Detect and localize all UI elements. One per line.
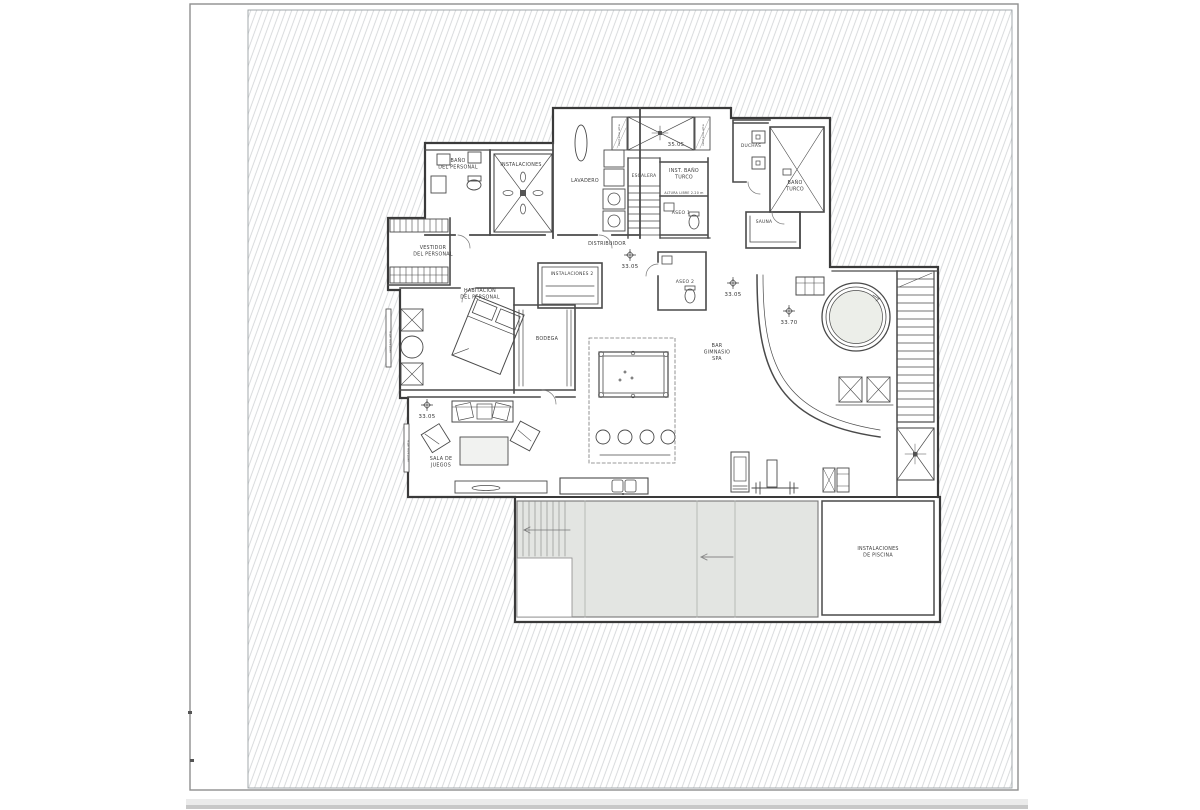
scanned-page-viewport: BAÑODEL PERSONALINSTALACIONESLAVADEROESC…	[0, 0, 1200, 810]
room-label-altura-libre: ALTURA LIBRE 2.20 m	[664, 191, 703, 195]
level-value: 33.05	[622, 264, 639, 270]
room-label-duchas: DUCHAS	[741, 143, 761, 149]
room-label-aseo-1: ASEO 1	[672, 210, 690, 216]
jacuzzi	[822, 283, 890, 351]
room-label-bodega: BODEGA	[536, 336, 559, 342]
room-label-ventana-alta-3: ventana alta	[617, 124, 621, 146]
room-label-instalaciones: INSTALACIONES	[500, 162, 541, 168]
room-label-instalaciones-2: INSTALACIONES 2	[551, 271, 594, 277]
room-label-sauna: SAUNA	[756, 219, 773, 225]
room-label-lavadero: LAVADERO	[571, 178, 599, 184]
room-label-ventana-alta-4: ventana alta	[701, 124, 705, 146]
room-label-distribuidor: DISTRIBUIDOR	[588, 241, 626, 247]
next-page-edge	[186, 799, 1028, 809]
room-label-ventana-alta-2: ventana alta	[406, 440, 410, 462]
registration-mark	[188, 711, 192, 714]
level-value: 33.70	[781, 320, 798, 326]
floor-plan-sheet: BAÑODEL PERSONALINSTALACIONESLAVADEROESC…	[0, 0, 1200, 810]
room-label-aseo-2: ASEO 2	[676, 279, 694, 285]
level-value: 33.05	[725, 292, 742, 298]
registration-mark	[190, 759, 194, 762]
level-value: 33.05	[419, 414, 436, 420]
room-label-nivel-35-05: 35.05	[668, 142, 685, 148]
room-label-habitacion: HABITACIÓNDEL PERSONAL	[460, 287, 500, 300]
room-label-escalera: ESCALERA	[632, 173, 657, 179]
room-label-bano-turco: BAÑOTURCO	[785, 179, 804, 192]
room-label-ventana-alta-1: ventana alta	[388, 331, 392, 353]
